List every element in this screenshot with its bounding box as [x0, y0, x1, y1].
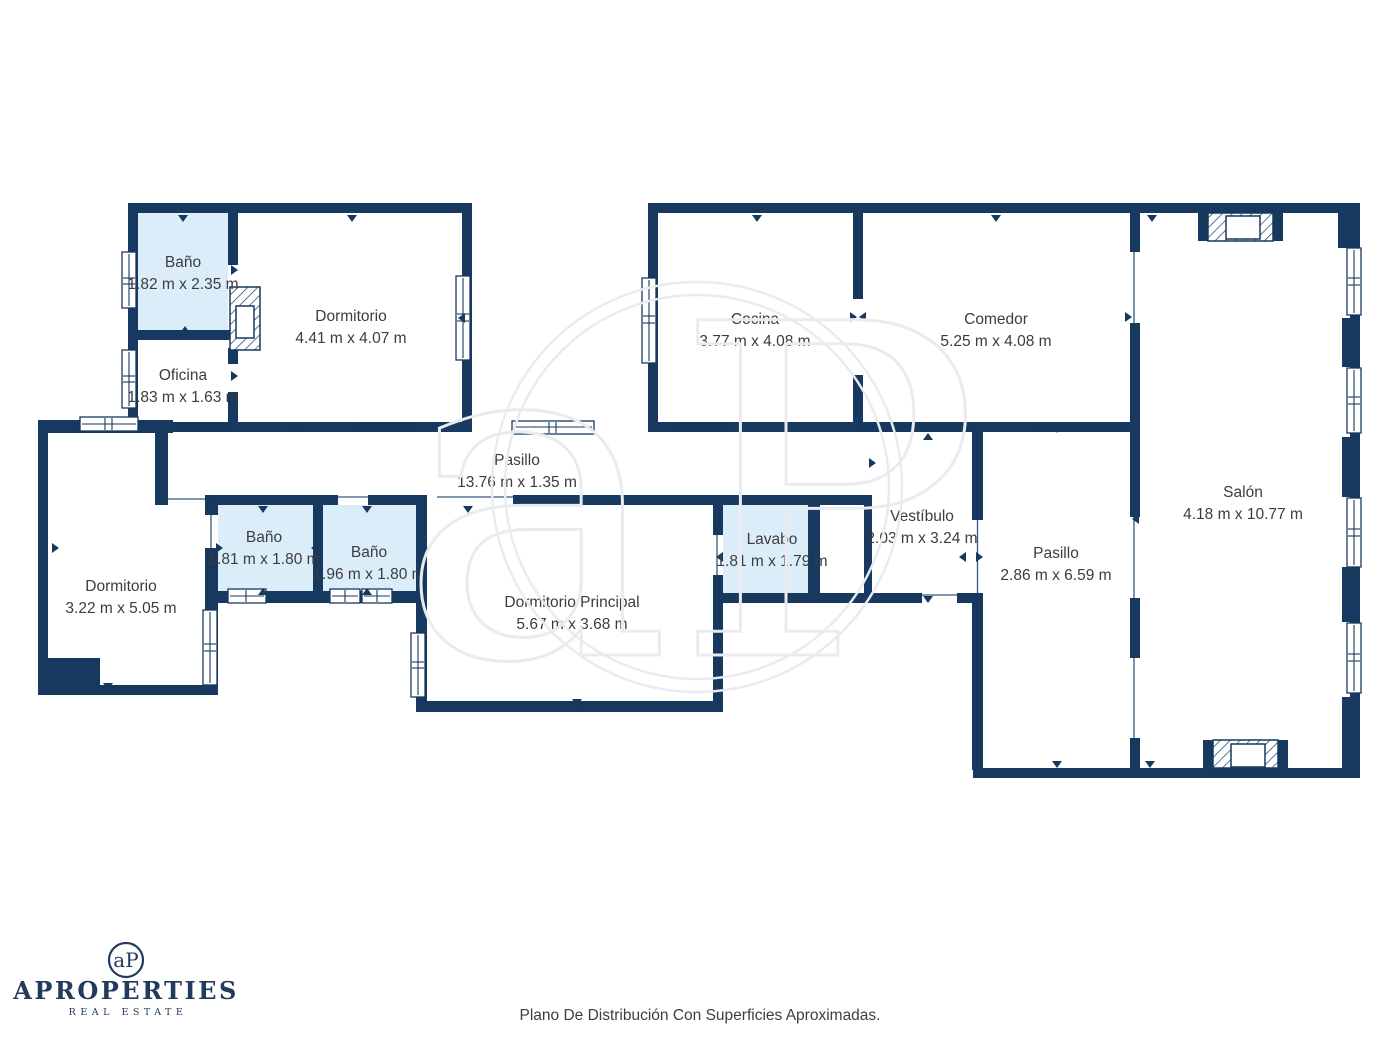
room-label-salon: Salón: [1223, 484, 1263, 501]
plan-caption: Plano De Distribución Con Superficies Ap…: [520, 1007, 881, 1024]
window-symbol: [1347, 623, 1361, 693]
window-symbol: [1347, 248, 1361, 315]
watermark-monogram: aP: [398, 229, 982, 764]
room-dims-pasillo-v: 2.86 m x 6.59 m: [1000, 567, 1111, 584]
room-dims-banyo-2: 1.81 m x 1.80 m: [208, 551, 319, 568]
room-dims-banyo-suite: 1.82 m x 2.35 m: [127, 276, 238, 293]
room-label-dormitorio-1: Dormitorio: [315, 308, 386, 325]
room-label-banyo-2: Baño: [246, 529, 282, 546]
room-dims-dormitorio-2: 3.22 m x 5.05 m: [65, 600, 176, 617]
logo-tagline: REAL ESTATE: [69, 1007, 188, 1018]
logo-monogram: aP: [113, 948, 138, 972]
floor-plan-canvas: Baño 1.82 m x 2.35 m Dormitorio 4.41 m x…: [0, 0, 1400, 1050]
window-symbol: [1347, 498, 1361, 567]
window-symbol: [228, 589, 266, 603]
chimney-hatch: [1208, 213, 1273, 241]
room-label-pasillo-v: Pasillo: [1033, 545, 1079, 562]
room-label-banyo-3: Baño: [351, 544, 387, 561]
banyo-2-floor: [218, 505, 313, 591]
window-symbol: [80, 417, 138, 431]
window-symbol: [203, 610, 217, 685]
banyo-suite-floor: [138, 213, 228, 330]
room-dims-oficina: 1.83 m x 1.63 m: [127, 389, 238, 406]
logo-company-name: APROPERTIES: [12, 976, 239, 1005]
room-dims-salon: 4.18 m x 10.77 m: [1183, 506, 1303, 523]
room-label-banyo-suite: Baño: [165, 254, 201, 271]
chimney-hatch: [230, 287, 260, 350]
room-label-oficina: Oficina: [159, 367, 208, 384]
room-label-dormitorio-2: Dormitorio: [85, 578, 156, 595]
chimney-hatch: [1213, 740, 1278, 768]
room-dims-dormitorio-1: 4.41 m x 4.07 m: [295, 330, 406, 347]
watermark: aP: [398, 229, 982, 764]
window-symbol: [1347, 368, 1361, 433]
window-symbol: [330, 589, 360, 603]
